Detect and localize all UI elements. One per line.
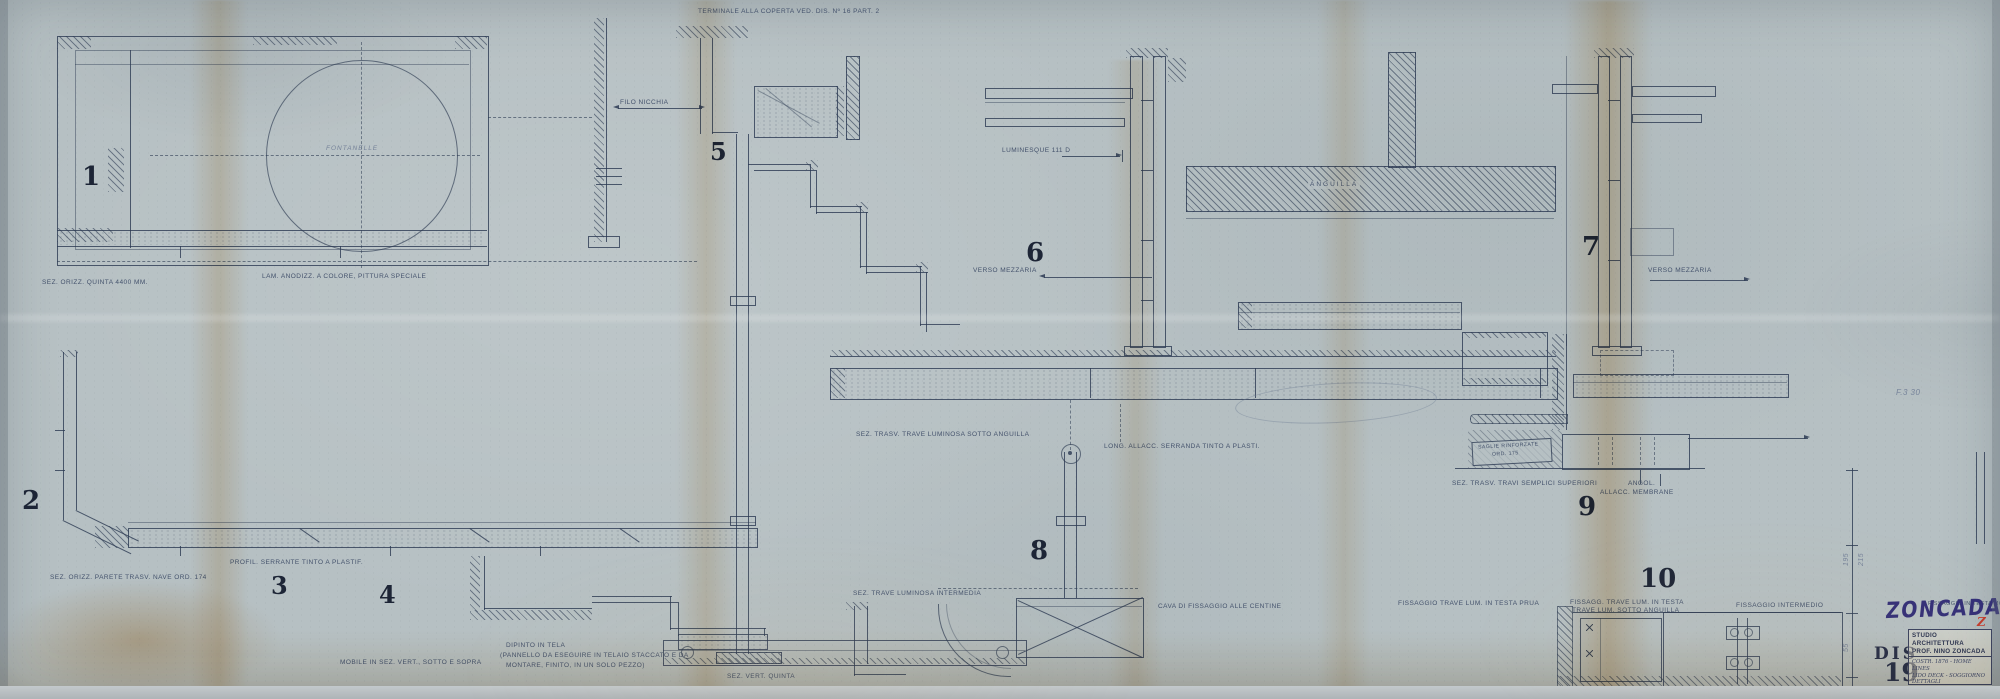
stipple <box>58 231 486 245</box>
project-line-1: COSTR. 1876 - HOME LINES <box>1912 659 1988 673</box>
tick <box>1846 470 1858 471</box>
stroke <box>748 134 749 654</box>
hatch <box>60 350 78 357</box>
data-value: 12.05.1963 <box>1926 691 1949 696</box>
anguilla-girder <box>1186 166 1556 212</box>
stroke <box>180 246 181 258</box>
label-fissagg-testa: FISSAGG. TRAVE LUM. IN TESTA <box>1570 599 1684 607</box>
bolt-circle <box>1744 658 1753 667</box>
project-line-3: DETTAGLI <box>1912 679 1988 686</box>
stroke <box>860 266 922 267</box>
framed-note-line2: ORD. 175 <box>1492 450 1519 458</box>
stroke <box>1566 56 1567 346</box>
bolt-circle <box>1730 658 1739 667</box>
tick <box>1846 613 1858 614</box>
stroke <box>1612 437 1613 465</box>
plate <box>985 118 1125 127</box>
tick <box>55 430 65 431</box>
stroke <box>484 556 485 610</box>
hatch <box>676 26 748 38</box>
column-wall <box>1153 56 1166 348</box>
dis-label: DIS. Nº <box>1976 691 1985 699</box>
red-z-mark: Z <box>1977 615 1986 629</box>
tick <box>1122 150 1123 162</box>
hatch <box>253 37 337 45</box>
crease <box>0 314 2000 322</box>
caption-detail-4: MOBILE IN SEZ. VERT., SOTTO E SOPRA <box>340 659 482 667</box>
stroke <box>985 102 1125 103</box>
stroke <box>1984 452 1985 544</box>
hatch <box>455 36 487 49</box>
stroke <box>730 516 756 526</box>
label-fissaggio-prua: FISSAGGIO TRAVE LUM. IN TESTA PRUA <box>1398 600 1539 608</box>
stroke <box>830 356 1556 357</box>
tick <box>1660 474 1661 486</box>
stroke <box>1600 618 1601 680</box>
blueprint-sheet: TERMINALE ALLA COPERTA VED. DIS. Nº 16 P… <box>0 0 2000 699</box>
detail-number-3: 3 <box>271 574 288 598</box>
hatched-bar <box>1470 414 1568 424</box>
pencil-note-f3: F.3 30 <box>1896 388 1920 398</box>
stroke <box>866 212 867 274</box>
collar <box>1056 516 1086 526</box>
plate <box>985 88 1133 99</box>
scala-value: 1:1 <box>1968 691 1974 696</box>
label-anguilla: ANGUILLA <box>1308 181 1360 189</box>
arrowhead <box>1804 435 1810 439</box>
hatch <box>1462 378 1546 384</box>
plate <box>1552 84 1598 94</box>
arrowhead <box>613 105 619 109</box>
stroke <box>1608 260 1620 261</box>
stroke <box>754 170 816 171</box>
stroke <box>670 596 671 630</box>
bolt-circle <box>1730 628 1739 637</box>
hatch <box>1557 676 1841 688</box>
label-serrante: PROFIL. SERRANTE TINTO A PLASTIF. <box>230 559 363 567</box>
note-see-dis-16: TERMINALE ALLA COPERTA VED. DIS. Nº 16 P… <box>698 8 880 16</box>
label-trave-sotto-anguilla: TRAVE LUM. SOTTO ANGUILLA <box>1572 607 1679 615</box>
stroke <box>1186 218 1554 219</box>
beam-outline <box>1562 434 1690 470</box>
stroke <box>588 236 620 248</box>
joint <box>1090 368 1091 398</box>
stroke <box>854 606 855 676</box>
beam-band <box>1238 302 1462 330</box>
label-allacc-membrane: ALLACC. MEMBRANE <box>1600 489 1674 497</box>
stroke <box>606 18 607 242</box>
joint <box>1255 368 1256 398</box>
studio-line-1: STUDIO ARCHITETTURA <box>1912 632 1988 648</box>
stroke <box>1141 170 1153 171</box>
caption-beam-sotto-anguilla: SEZ. TRASV. TRAVE LUMINOSA SOTTO ANGUILL… <box>856 431 1029 439</box>
stroke <box>860 206 861 268</box>
centerline <box>150 155 480 156</box>
dim-line <box>618 108 702 109</box>
stroke <box>1654 437 1655 465</box>
label-anodized: LAM. ANODIZZ. A COLORE, PITTURA SPECIALE <box>262 273 426 281</box>
louver <box>596 176 622 177</box>
arrowhead <box>1039 274 1045 278</box>
label-verso-mezzaria-7: VERSO MEZZARIA <box>1648 267 1712 275</box>
divider <box>1909 656 1991 657</box>
stroke <box>867 606 868 664</box>
circle-outline <box>266 60 458 252</box>
stroke <box>1141 240 1153 241</box>
tick <box>540 546 541 556</box>
hatch <box>95 526 129 548</box>
detail-number-2: 2 <box>22 488 40 514</box>
caption-detail-2: SEZ. ORIZZ. PARETE TRASV. NAVE ORD. 174 <box>50 574 207 582</box>
dim-55: 55 <box>1843 643 1852 652</box>
stroke <box>712 132 738 133</box>
bolt-circle <box>1744 628 1753 637</box>
scala-label: SCALA <box>1951 691 1966 696</box>
detail-number-4: 4 <box>379 583 396 607</box>
hatch <box>856 202 868 212</box>
plate <box>1632 86 1716 97</box>
label-verso-mezzaria-6: VERSO MEZZARIA <box>973 267 1037 275</box>
dim-195: 195 <box>1843 553 1852 566</box>
hatch <box>1168 58 1186 82</box>
hatch <box>108 148 124 192</box>
stroke <box>736 134 737 654</box>
stroke <box>670 628 766 629</box>
label-cava-fissaggio: CAVA DI FISSAGGIO ALLE CENTINE <box>1158 603 1281 611</box>
stroke <box>748 164 810 165</box>
detail-number-6: 6 <box>1026 240 1044 266</box>
note-dipinto-2: (PANNELLO DA ESEGUIRE IN TELAIO STACCATO… <box>500 652 689 660</box>
hatch <box>57 36 91 49</box>
note-dipinto-1: DIPINTO IN TELA <box>506 642 565 650</box>
fold-stain <box>676 0 736 699</box>
stroke <box>678 602 679 636</box>
detail-number-1: 1 <box>82 164 100 190</box>
stroke <box>592 596 672 597</box>
tick <box>1846 545 1858 546</box>
detail-number-5: 5 <box>710 140 727 164</box>
hatch <box>1126 48 1168 58</box>
beam-band <box>1573 374 1789 398</box>
stroke <box>484 608 592 609</box>
hatch <box>806 160 818 170</box>
stroke <box>57 246 487 247</box>
stroke <box>926 272 927 332</box>
leader-line <box>1650 280 1748 281</box>
dim-215: 215 <box>1858 553 1867 566</box>
tick <box>180 546 181 556</box>
louver <box>596 184 622 185</box>
stroke <box>854 674 906 675</box>
dim-line <box>1852 468 1853 690</box>
edge-shadow <box>0 0 8 699</box>
stroke <box>1598 437 1599 465</box>
stroke <box>1640 437 1641 465</box>
label-angol: ANGOL. <box>1628 480 1655 488</box>
hatch <box>1238 302 1252 328</box>
wall-band <box>128 528 758 548</box>
stroke <box>1608 100 1620 101</box>
stroke <box>730 296 756 306</box>
stroke <box>866 272 928 273</box>
plate <box>1632 114 1702 123</box>
caption-detail-9: SEZ. TRASV. TRAVI SEMPLICI SUPERIORI <box>1452 480 1597 488</box>
hatch <box>1462 332 1546 338</box>
dashed-box <box>1600 350 1674 376</box>
stroke <box>920 266 921 326</box>
stroke <box>920 324 960 325</box>
centerline <box>57 261 697 262</box>
bracket <box>1630 228 1674 256</box>
hatch <box>846 56 860 140</box>
stroke <box>1557 690 1841 691</box>
hatch <box>594 18 604 242</box>
beam-band <box>830 368 1558 400</box>
label-luminesque: LUMINESQUE 111 D <box>1002 147 1070 155</box>
arrowhead <box>1744 277 1750 281</box>
leader-line <box>488 117 592 118</box>
project-line-2: LIDO DECK - SOGGIORNO <box>1912 673 1988 680</box>
leader-line <box>1044 277 1152 278</box>
note-dipinto-3: MONTARE, FINITO, IN UN SOLO PEZZO) <box>506 662 645 670</box>
stroke <box>1141 300 1153 301</box>
stroke <box>592 602 678 603</box>
label-long-allacc: LONG. ALLACC. SERRANDA TINTO A PLASTI. <box>1104 443 1260 451</box>
label-fissaggio-intermedio: FISSAGGIO INTERMEDIO <box>1736 602 1823 610</box>
tick <box>390 546 391 556</box>
stroke <box>1688 438 1808 439</box>
data-label: DATA <box>1912 691 1924 696</box>
column-wall <box>1620 56 1632 348</box>
x-mark <box>1586 650 1593 657</box>
caption-detail-1: SEZ. ORIZZ. QUINTA 4400 MM. <box>42 279 148 287</box>
hatch <box>916 262 928 272</box>
corner-stain <box>0 580 280 699</box>
stroke <box>1455 468 1705 469</box>
hatch <box>470 610 592 620</box>
stroke <box>700 38 701 134</box>
pillar-hatch <box>1388 52 1416 168</box>
stroke <box>1573 382 1787 383</box>
louver <box>596 168 622 169</box>
dis-value: 19 <box>1987 688 1996 696</box>
stroke <box>764 628 765 636</box>
label-filo-nicchia: FILO NICCHIA <box>620 99 668 107</box>
stroke <box>816 170 817 214</box>
stroke <box>76 352 77 510</box>
tick <box>1846 677 1858 678</box>
studio-line-2: PROF. NINO ZONCADA <box>1912 648 1988 656</box>
detail-number-7: 7 <box>1582 234 1600 260</box>
stroke <box>75 64 469 65</box>
stroke <box>128 522 756 523</box>
leader-line <box>1120 404 1121 442</box>
dim-line <box>1062 156 1120 157</box>
hatch <box>1594 48 1634 58</box>
hatch <box>836 86 844 136</box>
detail-number-9: 9 <box>1578 494 1596 520</box>
centerline <box>1070 400 1071 450</box>
caption-detail-8: SEZ. TRAVE LUMINOSA INTERMEDIA <box>853 590 981 598</box>
stroke <box>130 50 131 248</box>
stroke <box>340 246 341 258</box>
hatch <box>830 368 845 398</box>
hatch <box>846 602 868 610</box>
tick <box>55 470 65 471</box>
title-block-meta: DATA 12.05.1963 SCALA 1:1 DIS. Nº 19 <box>1912 688 1988 699</box>
stroke <box>712 38 713 134</box>
hatch <box>470 556 480 612</box>
stroke <box>1238 312 1460 313</box>
leader-line <box>938 588 1138 589</box>
detail-number-8: 8 <box>1030 538 1048 564</box>
caption-detail-5: SEZ. VERT. QUINTA <box>727 673 795 681</box>
stroke <box>1976 452 1977 544</box>
x-mark <box>1586 624 1593 631</box>
stroke <box>63 352 64 520</box>
stroke <box>810 164 811 208</box>
title-block: STUDIO ARCHITETTURA PROF. NINO ZONCADA C… <box>1908 629 1992 685</box>
stroke <box>1608 180 1620 181</box>
stroke <box>1068 451 1072 455</box>
stroke <box>1141 100 1153 101</box>
label-fontanelle: FONTANELLE <box>326 145 378 153</box>
detail-number-10: 10 <box>1640 566 1676 592</box>
stroke <box>810 206 862 207</box>
